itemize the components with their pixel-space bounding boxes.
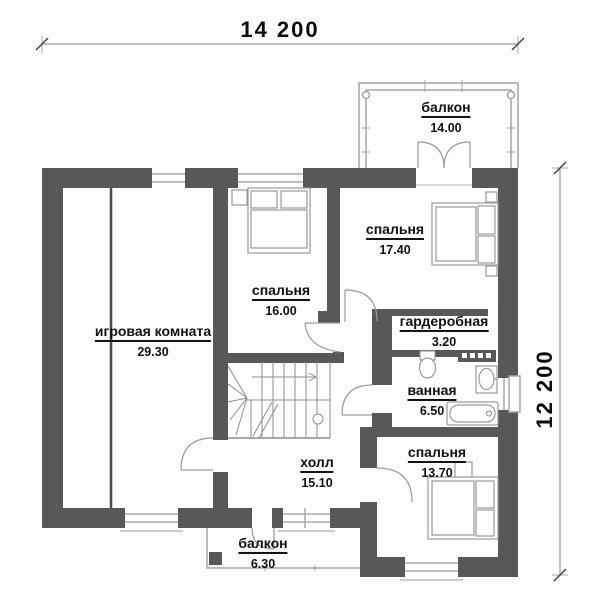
room-name: спальня (408, 443, 466, 463)
wardrobe-unit-square-2 (470, 353, 475, 358)
room-area: 6.50 (407, 403, 456, 419)
room-label-bedroom16: спальня 16.00 (252, 281, 310, 319)
nightstand-icon-bedroom16 (232, 190, 247, 205)
stairs-break-line (253, 402, 278, 438)
room-label-bedroom17: спальня 17.40 (366, 220, 424, 258)
stairs-treads-lower (251, 400, 317, 438)
room-area: 3.20 (400, 334, 489, 350)
wall-bathroom-left-upper (372, 355, 392, 385)
door-bathroom (342, 385, 372, 415)
room-name: холл (300, 453, 333, 473)
room-label-bathroom: ванная 6.50 (407, 381, 456, 419)
wall-bedroom16-bottom-cap (333, 352, 344, 363)
railing-post-right (508, 92, 515, 99)
stairs (228, 362, 330, 438)
balcony-bottom-post (209, 552, 222, 565)
room-area: 13.70 (408, 465, 466, 481)
room-area: 14.00 (421, 120, 470, 136)
door-opening-bedroom13 (360, 468, 377, 502)
stairs-winders (228, 366, 247, 435)
room-label-balcony-top: балкон 14.00 (421, 98, 470, 136)
room-area: 17.40 (366, 242, 424, 258)
wall-between-bedrooms (327, 188, 340, 311)
bed-icon-bedroom13 (428, 477, 498, 539)
room-name: спальня (252, 281, 310, 301)
balcony-door-opening (252, 508, 272, 528)
sink-icon (476, 366, 498, 393)
door-bedroom16 (305, 323, 340, 352)
wall-right (498, 168, 518, 577)
nightstand-icon-bedroom17-bottom (486, 266, 497, 276)
room-name: балкон (238, 534, 287, 554)
floor-plan: 14 200 12 200 балкон 14.00 спальня 17.40… (0, 0, 600, 610)
bed-icon-bedroom17 (432, 203, 498, 265)
dimension-width-label: 14 200 (240, 17, 319, 43)
window-opening-bottom-3 (405, 557, 458, 577)
wall-bathroom-bedroom13 (377, 427, 498, 437)
dimension-height-label: 12 200 (532, 349, 558, 428)
door-bedroom13 (377, 468, 412, 502)
room-label-balcony-bottom: балкон 6.30 (238, 534, 287, 572)
room-area: 6.30 (238, 556, 287, 572)
room-area: 16.00 (252, 303, 310, 319)
bed-icon-bedroom16 (248, 188, 310, 253)
window-opening-top-1 (152, 168, 185, 188)
stairs-newel (313, 414, 323, 424)
window-opening-bottom-2 (283, 508, 330, 528)
window-opening-bottom-1 (125, 508, 178, 528)
room-name: игровая комната (95, 322, 211, 342)
wall-between-bedrooms-cap (318, 311, 340, 323)
wardrobe-unit-square-4 (486, 353, 491, 358)
french-door-left (418, 142, 444, 168)
window-opening-top-2 (238, 168, 303, 188)
wardrobe-unit-square-3 (478, 353, 483, 358)
french-door-right (444, 142, 470, 168)
room-area: 29.30 (95, 344, 211, 360)
wall-bedroom16-bottom (228, 353, 333, 363)
room-name: ванная (407, 381, 456, 401)
room-label-hall: холл 15.10 (300, 453, 333, 491)
railing-post-left (363, 92, 370, 99)
room-name: спальня (366, 220, 424, 240)
door-playroom (181, 438, 213, 470)
nightstand-icon-bedroom17-top (486, 192, 497, 202)
wall-hall-wardrobe-block (372, 312, 392, 355)
room-label-bedroom13: спальня 13.70 (408, 443, 466, 481)
room-name: балкон (421, 98, 470, 118)
window-frame-right (509, 376, 520, 412)
toilet-icon (420, 351, 436, 378)
stairs-treads-upper (262, 362, 317, 400)
room-label-wardrobe: гардеробная 3.20 (400, 312, 489, 350)
wall-left (42, 168, 63, 528)
room-area: 15.10 (300, 475, 333, 491)
door-opening-wardrobe (488, 309, 498, 316)
room-name: гардеробная (400, 312, 489, 332)
door-opening-playroom (213, 440, 228, 472)
wardrobe-unit-square-1 (462, 353, 467, 358)
room-label-playroom: игровая комната 29.30 (95, 322, 211, 360)
